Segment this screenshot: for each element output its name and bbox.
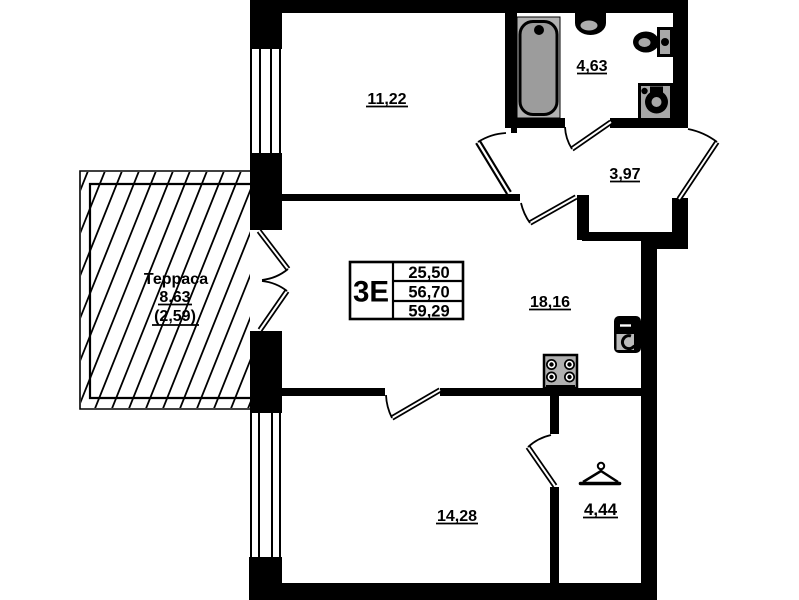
svg-text:25,50: 25,50 — [408, 264, 449, 282]
svg-text:3,97: 3,97 — [609, 166, 640, 183]
svg-text:56,70: 56,70 — [408, 284, 449, 302]
svg-text:8,63: 8,63 — [159, 289, 190, 306]
svg-text:Терраса: Терраса — [144, 271, 208, 288]
svg-text:11,22: 11,22 — [367, 91, 406, 108]
svg-text:(2,59): (2,59) — [154, 308, 196, 325]
svg-text:18,16: 18,16 — [530, 294, 570, 311]
svg-text:3Е: 3Е — [353, 276, 389, 309]
svg-text:4,63: 4,63 — [576, 58, 607, 75]
svg-text:4,44: 4,44 — [584, 500, 618, 519]
svg-text:59,29: 59,29 — [408, 303, 449, 321]
svg-text:14,28: 14,28 — [437, 508, 477, 525]
